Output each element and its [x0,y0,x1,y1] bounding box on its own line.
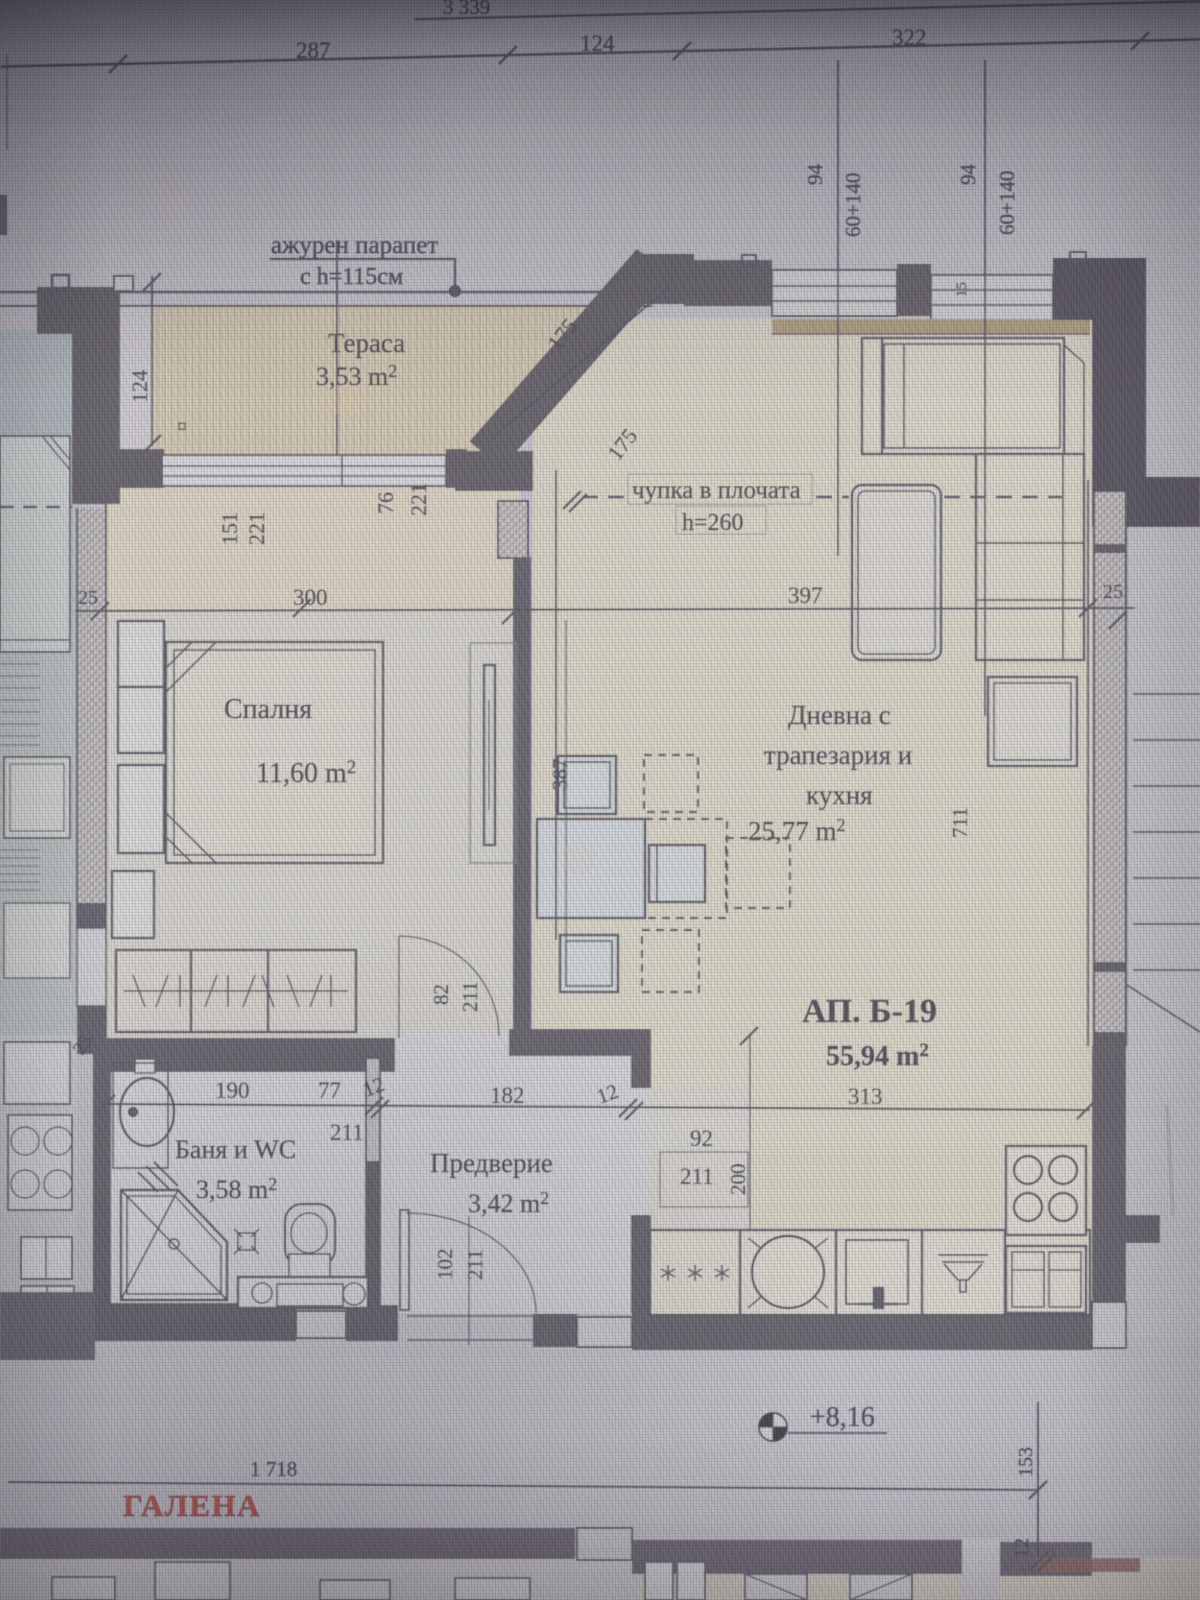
svg-text:322: 322 [892,25,927,50]
svg-text:211: 211 [463,1249,487,1280]
svg-text:153: 153 [1015,1447,1037,1477]
svg-text:3,58 m2: 3,58 m2 [196,1174,277,1204]
svg-text:25: 25 [78,587,98,609]
svg-text:ГАЛЕНА: ГАЛЕНА [123,1488,261,1523]
svg-text:1 718: 1 718 [250,1457,297,1481]
svg-text:313: 313 [848,1084,883,1109]
svg-text:ажурен парапет: ажурен парапет [271,232,438,259]
svg-text:94: 94 [956,164,980,186]
svg-text:Тераса: Тераса [328,328,405,358]
svg-text:151: 151 [217,512,242,545]
svg-text:3,53 m2: 3,53 m2 [316,361,397,391]
svg-text:397: 397 [788,583,823,608]
svg-text:Предверие: Предверие [430,1148,553,1178]
svg-text:Баня и WC: Баня и WC [175,1135,296,1164]
svg-text:102: 102 [433,1249,457,1281]
svg-text:94: 94 [803,164,827,186]
svg-text:+8,16: +8,16 [810,1402,875,1433]
svg-text:300: 300 [293,585,328,610]
svg-text:387: 387 [548,759,572,791]
svg-text:124: 124 [127,370,152,403]
svg-text:124: 124 [580,31,615,56]
svg-text:25,77 m2: 25,77 m2 [748,815,846,846]
svg-text:3 339: 3 339 [443,0,490,19]
svg-text:h=260: h=260 [682,510,744,536]
svg-text:711: 711 [948,807,972,838]
svg-text:77: 77 [318,1078,341,1103]
svg-text:211: 211 [458,981,482,1012]
svg-text:с h=115см: с h=115см [300,264,403,290]
svg-text:чупка в плочата: чупка в плочата [632,477,801,504]
svg-text:15: 15 [954,282,970,297]
svg-text:182: 182 [490,1083,525,1108]
svg-text:12: 12 [1011,1538,1033,1558]
svg-text:76: 76 [373,492,398,514]
svg-text:200: 200 [726,1164,750,1196]
svg-text:Спалня: Спалня [224,694,312,725]
svg-text:кухня: кухня [806,780,873,810]
svg-text:¤: ¤ [177,416,187,438]
svg-text:трапезария и: трапезария и [764,740,912,770]
svg-text:221: 221 [406,483,431,516]
svg-text:211: 211 [330,1120,364,1145]
svg-text:Дневна с: Дневна с [788,700,891,730]
svg-text:190: 190 [215,1078,250,1103]
svg-text:25: 25 [1103,581,1123,603]
svg-text:11,60 m2: 11,60 m2 [256,757,356,789]
svg-text:211: 211 [680,1164,714,1189]
svg-text:55,94 m2: 55,94 m2 [826,1040,929,1072]
svg-text:92: 92 [690,1126,713,1151]
svg-text:287: 287 [296,38,331,63]
svg-text:221: 221 [244,512,269,545]
svg-text:АП. Б-19: АП. Б-19 [802,993,937,1030]
svg-text:60+140: 60+140 [995,171,1019,235]
svg-text:3,42 m2: 3,42 m2 [468,1188,549,1218]
svg-text:60+140: 60+140 [841,173,865,237]
svg-text:82: 82 [429,984,453,1005]
